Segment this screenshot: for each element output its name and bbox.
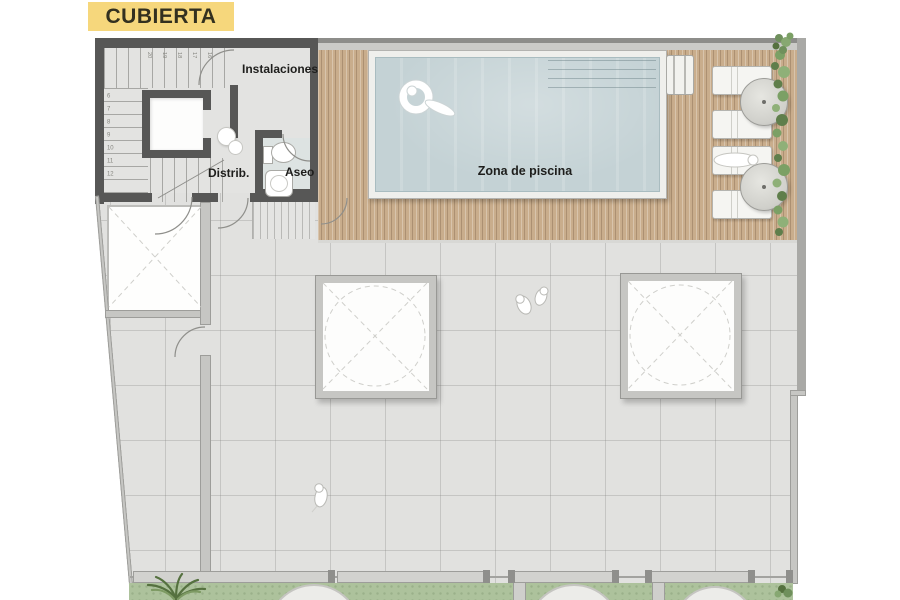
- balustrade-post: [483, 570, 490, 583]
- toilet-icon: [271, 142, 296, 163]
- room-label-instalaciones: Instalaciones: [242, 62, 318, 76]
- garden-strip: [129, 583, 793, 600]
- balustrade-post: [612, 570, 619, 583]
- step-number: 18: [176, 52, 182, 58]
- balustrade: [133, 571, 332, 583]
- deck-access-steps: [252, 197, 315, 239]
- room-label-pool-zone: Zona de piscina: [455, 164, 595, 178]
- wall: [200, 355, 211, 578]
- elevator-wall: [203, 90, 211, 110]
- stair-flight-top: 20 19 18 17 16: [104, 48, 228, 88]
- roof-plan: 20 19 18 17 16 6 7 8 9 10 11 12: [0, 0, 900, 600]
- garden-divider-wall: [652, 583, 665, 600]
- step-number: 6: [107, 93, 110, 99]
- garden-divider-wall: [513, 583, 526, 600]
- balustrade: [513, 571, 619, 583]
- balustrade-post: [645, 570, 652, 583]
- pool-underwater-steps: [548, 60, 656, 96]
- step-number: 20: [146, 52, 152, 58]
- skylight: [620, 273, 742, 399]
- parapet-wall: [790, 390, 798, 584]
- room-label-distribuidor: Distrib.: [208, 166, 249, 180]
- elevator-wall: [142, 90, 211, 98]
- elevator-wall: [142, 150, 211, 158]
- parapet-wall: [318, 43, 806, 50]
- stairwell-void: [107, 205, 207, 313]
- plan-title: CUBIERTA: [106, 5, 217, 29]
- balustrade-post: [786, 570, 793, 583]
- wall: [105, 310, 205, 318]
- step-number: 11: [107, 158, 113, 164]
- lower-skylight-dome: [673, 586, 757, 600]
- plan-title-banner: CUBIERTA: [88, 2, 234, 31]
- step-number: 12: [107, 171, 114, 177]
- balustrade-post: [328, 570, 335, 583]
- room-label-aseo: Aseo: [285, 165, 314, 179]
- balustrade-post: [508, 570, 515, 583]
- step-number: 7: [107, 106, 110, 112]
- wall: [95, 38, 104, 204]
- step-number: 10: [107, 145, 114, 151]
- parasol-icon: [740, 78, 788, 126]
- step-number: 16: [206, 52, 212, 58]
- step-number: 19: [161, 52, 167, 58]
- skylight: [315, 275, 437, 399]
- step-number: 9: [107, 132, 110, 138]
- balustrade-post: [748, 570, 755, 583]
- lower-skylight-dome: [527, 584, 621, 600]
- lower-skylight-dome: [267, 584, 361, 600]
- wall: [95, 193, 152, 202]
- wall: [200, 202, 211, 325]
- pool-ladder: [666, 55, 694, 95]
- decorative-plant-icon: [228, 140, 243, 155]
- wall: [192, 193, 218, 202]
- balustrade: [650, 571, 752, 583]
- parasol-icon: [740, 163, 788, 211]
- elevator-wall: [203, 138, 211, 158]
- balustrade: [337, 571, 487, 583]
- elevator-shaft: [150, 98, 203, 150]
- elevator-wall: [142, 90, 150, 158]
- step-number: 8: [107, 119, 110, 125]
- parapet-wall: [790, 390, 806, 396]
- wall: [255, 130, 263, 197]
- step-number: 17: [191, 52, 197, 58]
- wall: [95, 38, 318, 48]
- parapet-wall: [797, 38, 806, 396]
